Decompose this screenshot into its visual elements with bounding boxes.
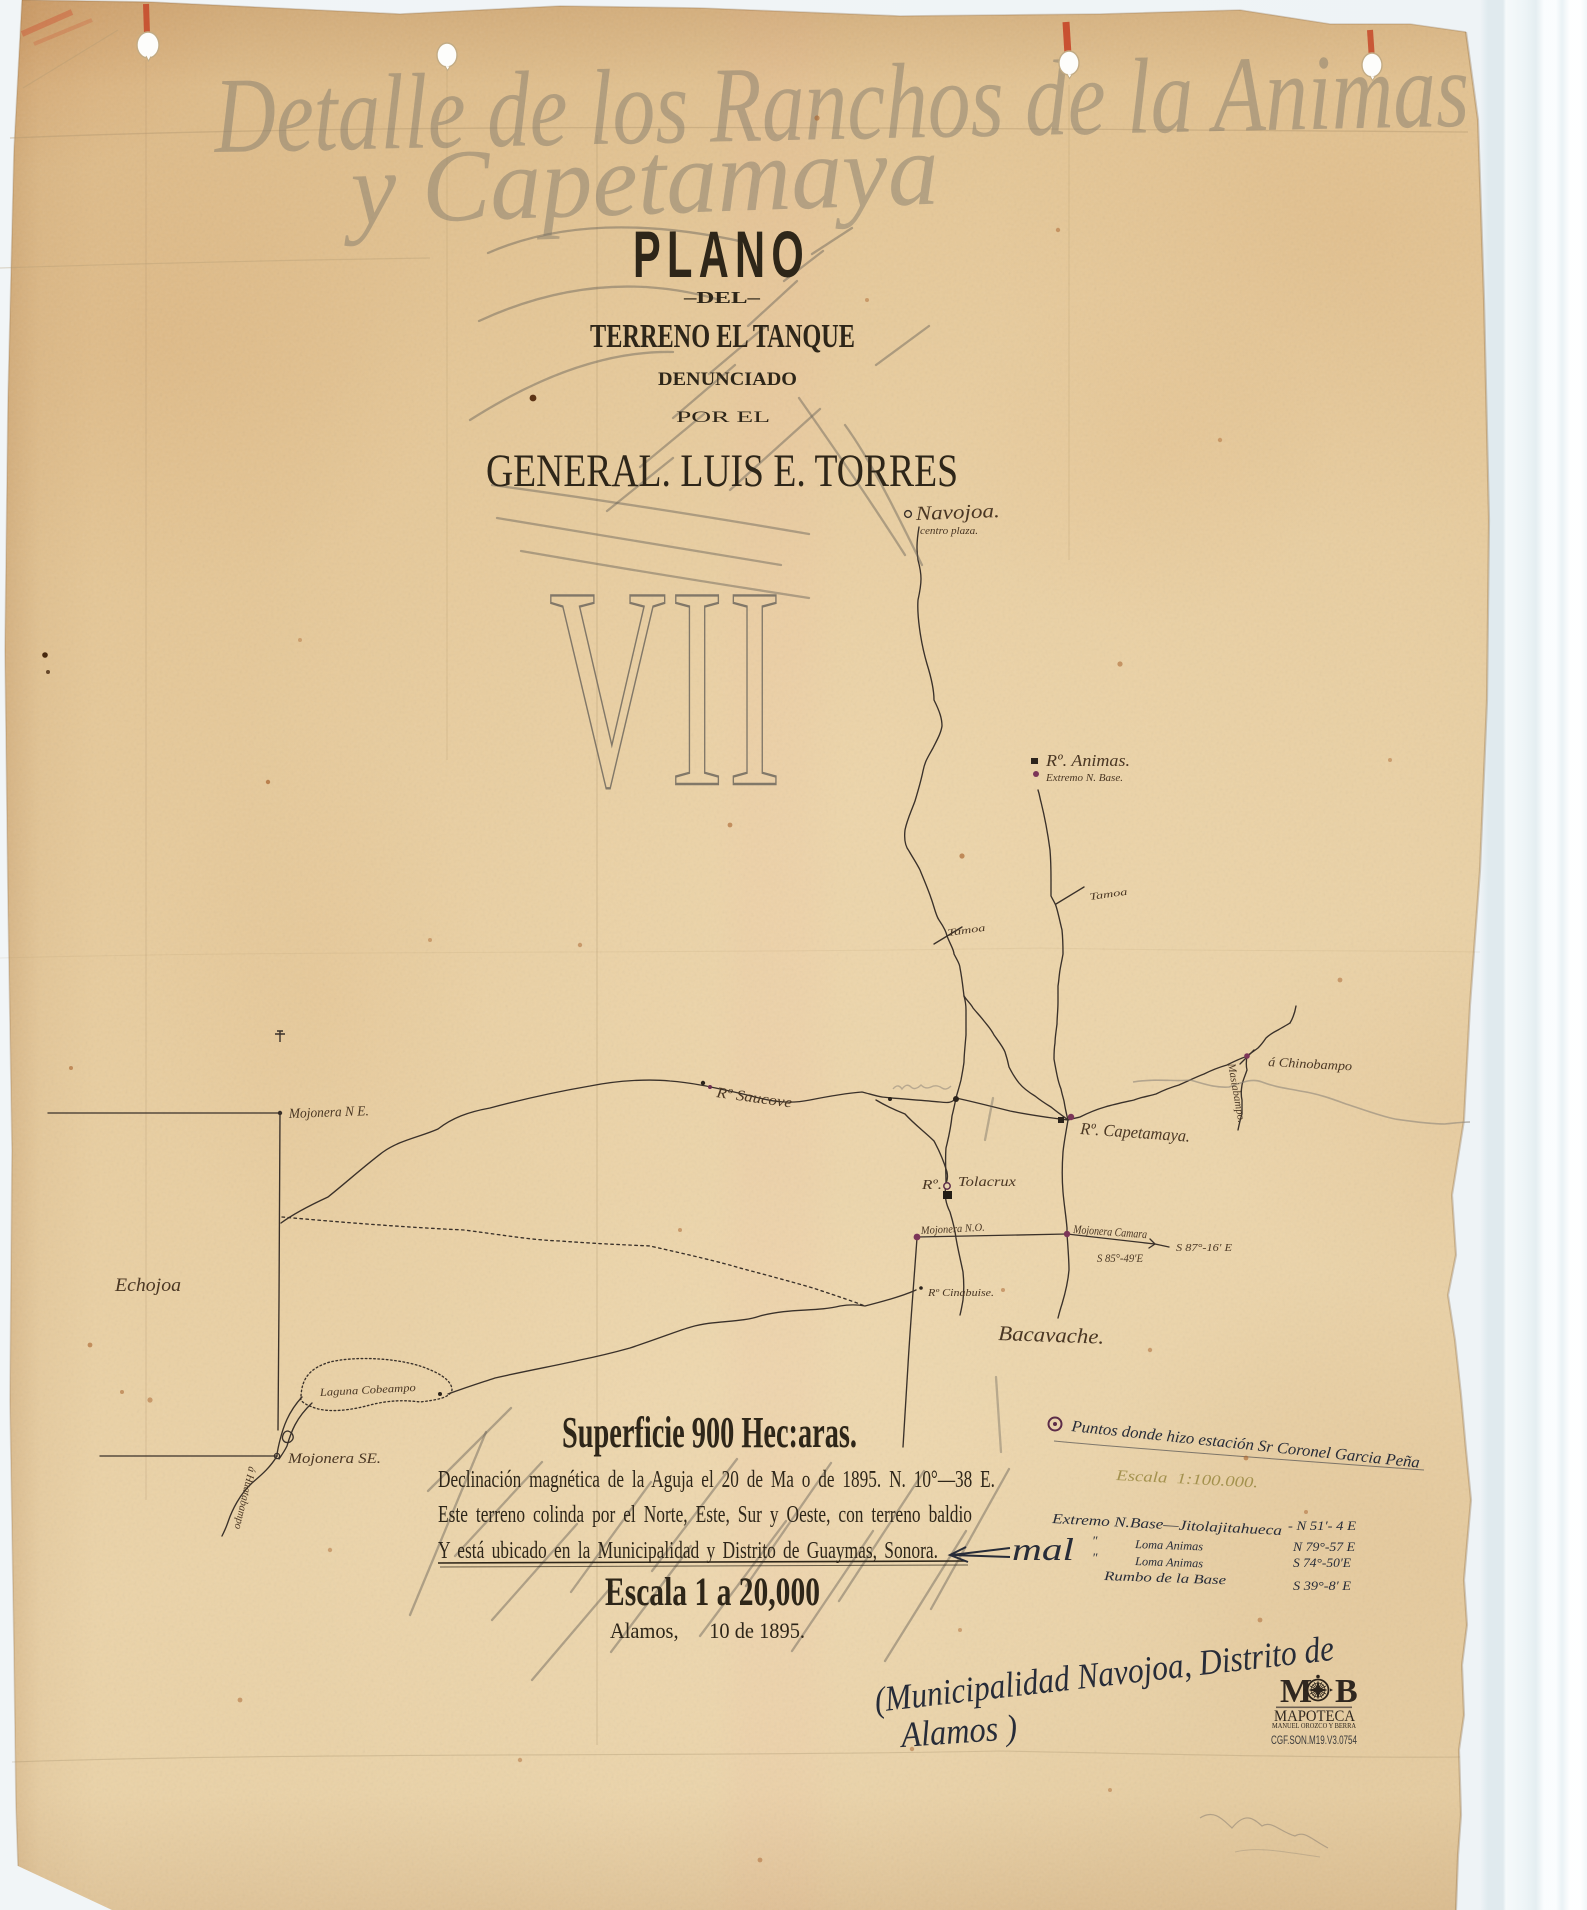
svg-text:S 39°-8′ E: S 39°-8′ E xyxy=(1293,1578,1351,1593)
svg-text:S 74°-50′E: S 74°-50′E xyxy=(1293,1555,1351,1570)
svg-text:Rº. Animas.: Rº. Animas. xyxy=(1045,751,1130,770)
svg-text:Alamos, 10 de 1895.: Alamos, 10 de 1895. xyxy=(610,1618,805,1643)
svg-text:Rº Cinabuise.: Rº Cinabuise. xyxy=(927,1287,994,1299)
svg-text:GENERAL. LUIS E. TORRES: GENERAL. LUIS E. TORRES xyxy=(486,445,958,497)
svg-text:centro plaza.: centro plaza. xyxy=(920,525,978,537)
svg-text:Superficie 900 Hec:aras.: Superficie 900 Hec:aras. xyxy=(562,1408,857,1457)
svg-text:Alamos ): Alamos ) xyxy=(898,1707,1018,1755)
svg-text:TERRENO EL TANQUE: TERRENO EL TANQUE xyxy=(590,318,855,355)
svg-text:″: ″ xyxy=(1092,1533,1098,1548)
svg-text:–DEL–: –DEL– xyxy=(683,288,761,307)
svg-text:Extremo N. Base.: Extremo N. Base. xyxy=(1045,772,1123,784)
svg-text:Declinación magnética de la Ag: Declinación magnética de la Aguja el 20 … xyxy=(438,1467,995,1493)
svg-text:Loma Animas: Loma Animas xyxy=(1134,1537,1204,1553)
svg-text:Echojoa: Echojoa xyxy=(114,1275,181,1296)
svg-text:POR EL: POR EL xyxy=(676,409,770,426)
svg-text:PLANO: PLANO xyxy=(633,217,810,291)
svg-text:Mojonera N E.: Mojonera N E. xyxy=(288,1104,369,1122)
svg-text:Rº.: Rº. xyxy=(921,1178,942,1193)
svg-text:Tolacrux: Tolacrux xyxy=(958,1175,1017,1190)
svg-text:DENUNCIADO: DENUNCIADO xyxy=(658,369,797,390)
svg-text:Escala 1 a 20,000: Escala 1 a 20,000 xyxy=(605,1569,820,1614)
svg-text:Loma Animas: Loma Animas xyxy=(1134,1554,1204,1570)
svg-text:Mojonera SE.: Mojonera SE. xyxy=(287,1451,381,1467)
svg-text:N 79°-57 E: N 79°-57 E xyxy=(1292,1539,1355,1554)
svg-text:Navojoa.: Navojoa. xyxy=(914,500,1000,525)
svg-text:Bacavache.: Bacavache. xyxy=(998,1321,1105,1349)
svg-text:- N 51′- 4 E: - N 51′- 4 E xyxy=(1288,1518,1356,1533)
svg-text:MANUEL OROZCO Y BERRA: MANUEL OROZCO Y BERRA xyxy=(1272,1721,1356,1730)
svg-text:mal: mal xyxy=(1012,1531,1074,1567)
svg-text:B: B xyxy=(1335,1673,1358,1710)
svg-text:Este terreno colinda por el No: Este terreno colinda por el Norte, Este,… xyxy=(438,1502,972,1528)
svg-text:CGF.SON.M19.V3.0754: CGF.SON.M19.V3.0754 xyxy=(1271,1733,1357,1747)
svg-text:S 87°-16′ E: S 87°-16′ E xyxy=(1176,1242,1232,1254)
svg-text:″: ″ xyxy=(1092,1550,1098,1565)
svg-text:S 85°-49′E: S 85°-49′E xyxy=(1097,1251,1144,1265)
svg-text:Y está ubicado en la Municipal: Y está ubicado en la Municipalidad y Dis… xyxy=(438,1538,938,1564)
